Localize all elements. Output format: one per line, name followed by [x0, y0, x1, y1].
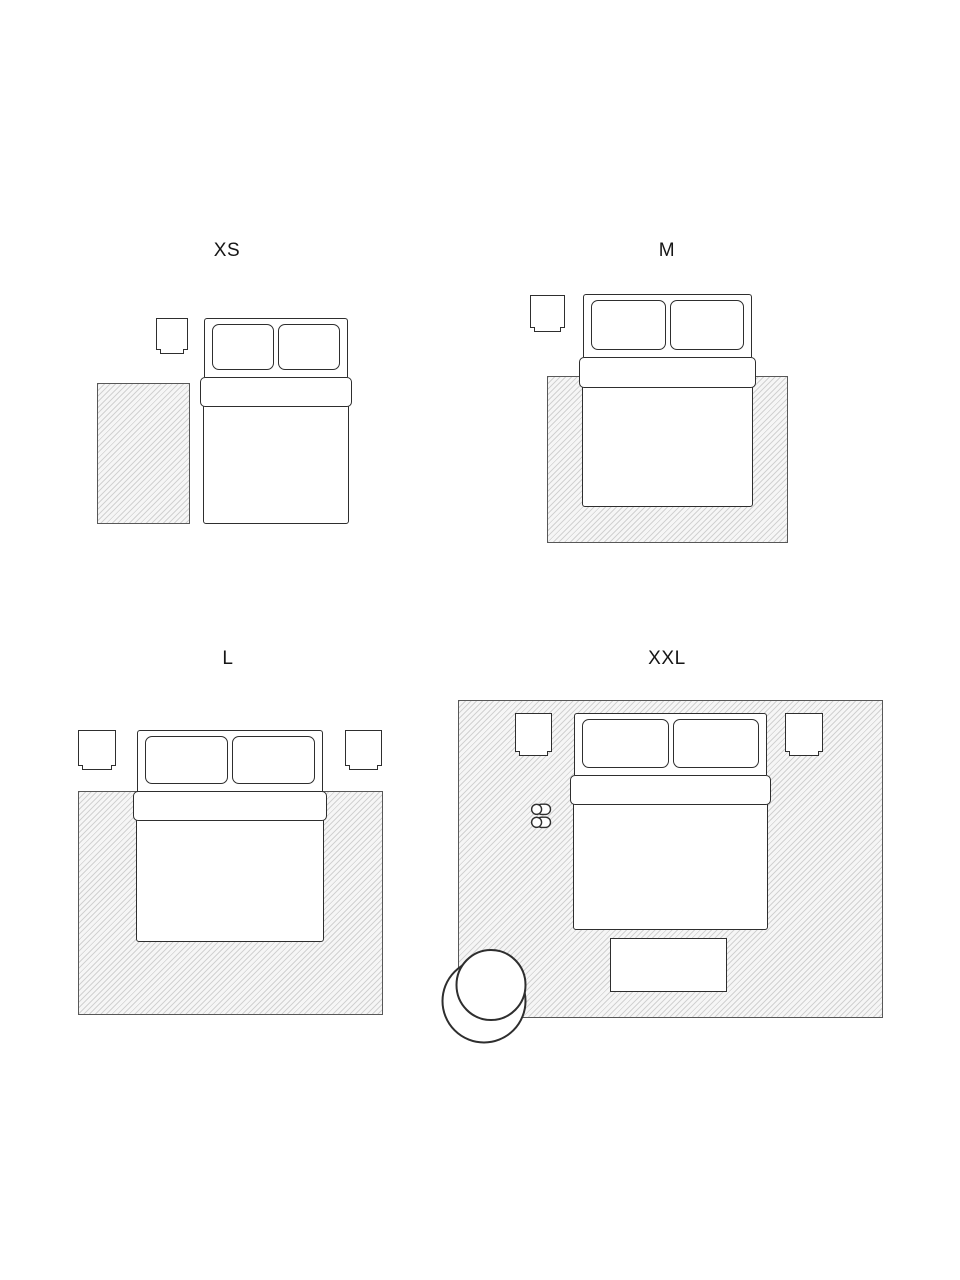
- rug-size-guide-diagram: XS M L: [0, 0, 960, 1280]
- bed-sheet-fold: [133, 791, 327, 821]
- bed-l: [136, 730, 324, 942]
- bed-duvet: [582, 380, 753, 507]
- bed-xs: [203, 318, 349, 524]
- nightstand-xxl-right: [785, 713, 823, 752]
- bed-xxl: [573, 713, 768, 930]
- pillow-left: [591, 300, 666, 350]
- size-label-xs: XS: [214, 241, 241, 260]
- slippers-icon: [530, 803, 556, 830]
- bed-duvet: [203, 399, 349, 524]
- bed-headboard: [137, 730, 323, 791]
- bench-xxl: [610, 938, 727, 992]
- nightstand-xs: [156, 318, 188, 350]
- bed-duvet: [136, 813, 324, 942]
- pillow-left: [582, 719, 669, 768]
- bed-sheet-fold: [570, 775, 771, 805]
- nightstand-l-right: [345, 730, 382, 766]
- bed-sheet-fold: [200, 377, 352, 407]
- size-label-l: L: [222, 649, 233, 668]
- bed-headboard: [574, 713, 767, 775]
- pillow-right: [278, 324, 340, 370]
- rug-xs: [97, 383, 190, 524]
- pillow-left: [145, 736, 228, 784]
- bed-duvet: [573, 797, 768, 930]
- nightstand-xxl-left: [515, 713, 552, 752]
- size-label-xxl: XXL: [648, 649, 686, 668]
- pillow-right: [670, 300, 745, 350]
- pillow-left: [212, 324, 274, 370]
- armchair-xxl: [438, 946, 532, 1046]
- size-label-m: M: [659, 241, 675, 260]
- pillow-right: [232, 736, 315, 784]
- nightstand-m: [530, 295, 565, 328]
- bed-headboard: [204, 318, 348, 377]
- bed-headboard: [583, 294, 752, 357]
- bed-sheet-fold: [579, 357, 756, 388]
- bed-m: [582, 294, 753, 507]
- pillow-right: [673, 719, 760, 768]
- nightstand-l-left: [78, 730, 116, 766]
